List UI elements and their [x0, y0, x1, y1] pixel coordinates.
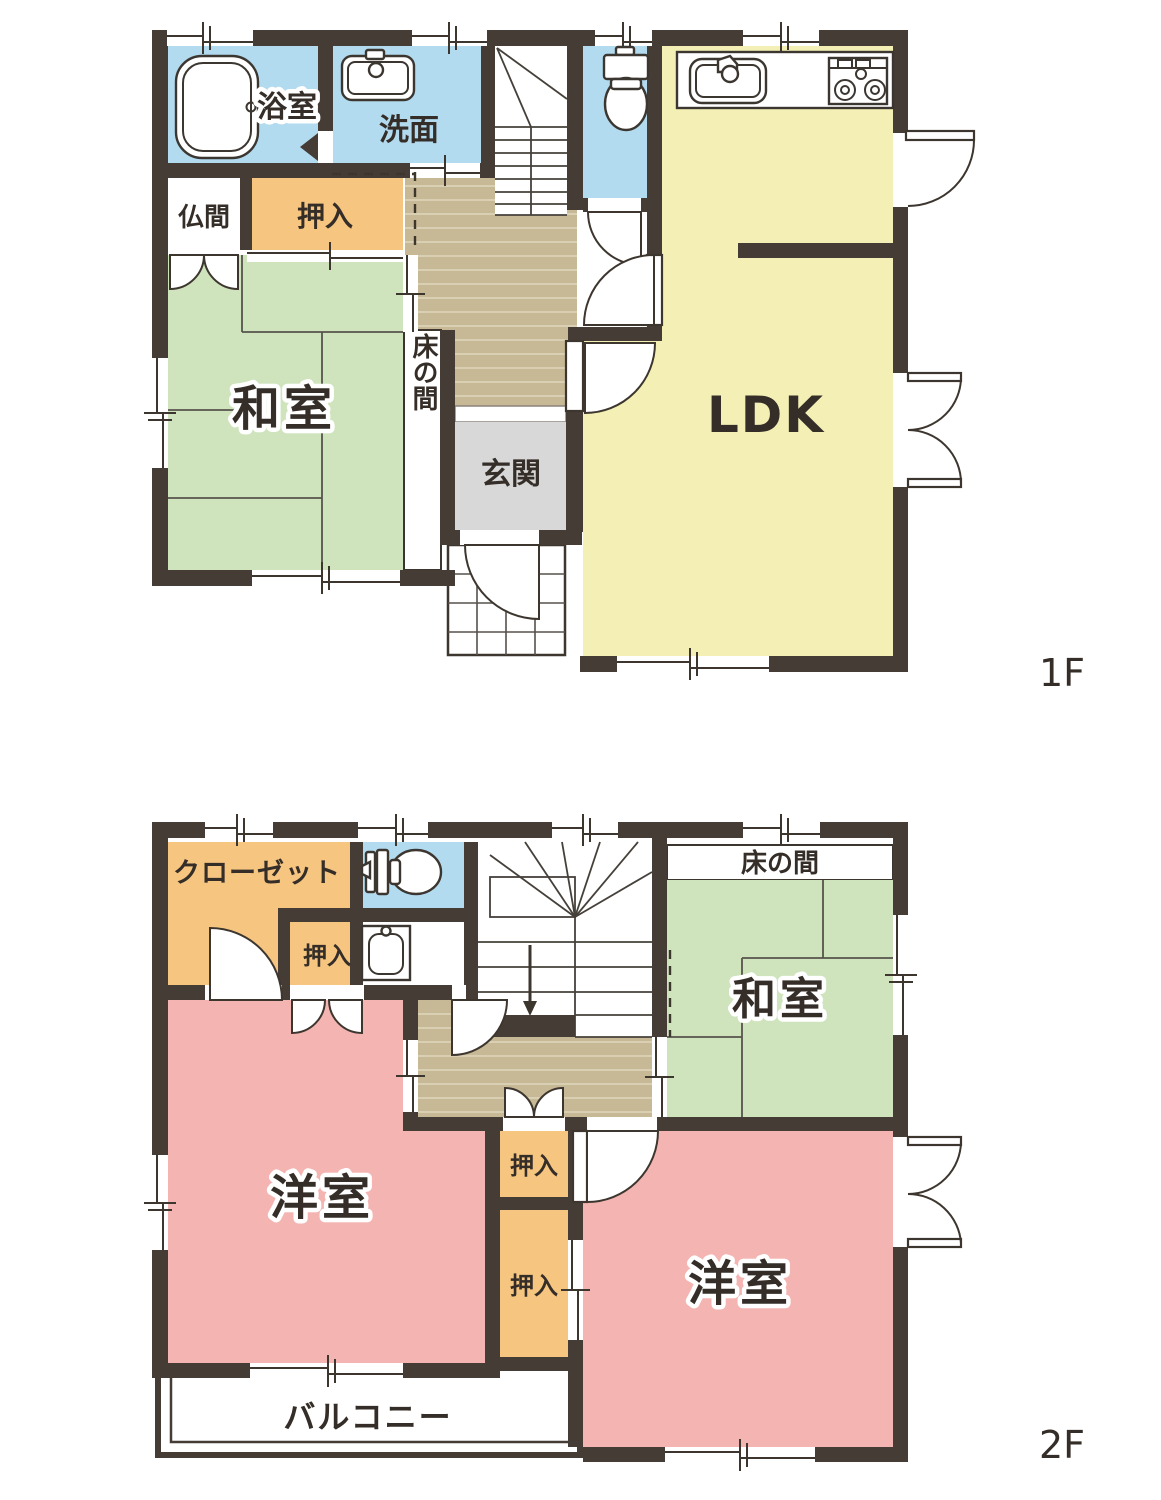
label-butsuma: 仏間	[178, 203, 230, 233]
label-washroom: 洗面	[379, 113, 439, 148]
label-tokonoma-2f: 床の間	[741, 848, 819, 879]
floor-plan-page: 浴室 洗面 仏間 押入 和室 床の間 玄関 LDK 1F	[0, 0, 1161, 1500]
floor-1f: 浴室 洗面 仏間 押入 和室 床の間 玄関 LDK 1F	[144, 22, 1085, 695]
label-oshiire-1f: 押入	[297, 200, 353, 233]
room-ldk	[662, 46, 893, 656]
ldk-partial-wall	[738, 243, 893, 258]
kitchen-counter	[677, 52, 893, 108]
label-oshiire-2f-upper: 押入	[510, 1152, 558, 1180]
label-oshiire-2f-lower: 押入	[510, 1272, 558, 1300]
entrance-step	[455, 406, 566, 422]
toilet-icon-2f	[362, 850, 441, 894]
stove-icon	[829, 58, 887, 104]
label-ldk: LDK	[707, 386, 825, 444]
kitchen-back-door	[908, 140, 974, 206]
room-youshitsu-left-ext	[168, 1117, 485, 1363]
label-closet: クローゼット	[173, 858, 341, 889]
label-tokonoma-1f: 床の間	[408, 332, 438, 411]
label-bath: 浴室	[257, 90, 317, 125]
label-balcony: バルコニー	[283, 1398, 452, 1436]
label-washitsu-1f: 和室	[232, 381, 336, 437]
label-youshitsu-right: 洋室	[688, 1256, 792, 1312]
toilet-icon-1f	[604, 47, 648, 130]
floor-plan-canvas: 浴室 洗面 仏間 押入 和室 床の間 玄関 LDK 1F	[0, 0, 1161, 1500]
floor-tag-1f: 1F	[1039, 651, 1085, 695]
washbasin-icon-2f	[362, 926, 410, 980]
label-youshitsu-left: 洋室	[270, 1170, 374, 1226]
label-genkan: 玄関	[481, 457, 541, 492]
floor-tag-2f: 2F	[1039, 1423, 1085, 1467]
floor-2f: クローゼット 押入 床の間 和室 洋室 押入 押入 洋室 バルコニー 2F	[144, 814, 1085, 1471]
label-washitsu-2f: 和室	[732, 974, 828, 1025]
label-oshiire-2f-small: 押入	[303, 942, 351, 970]
